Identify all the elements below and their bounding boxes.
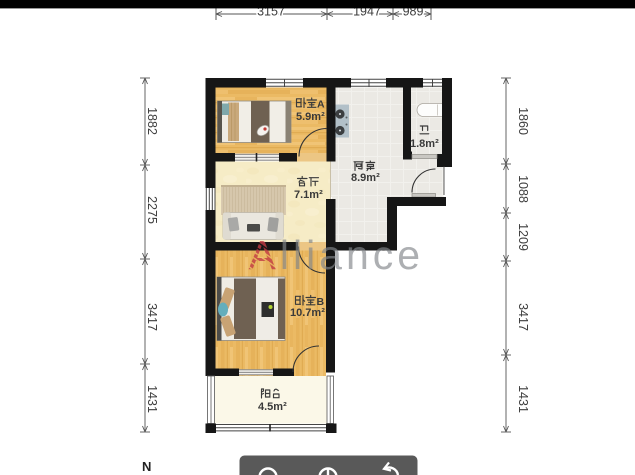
svg-text:A: A [317,99,325,111]
svg-text:1860: 1860 [516,107,530,135]
svg-text:1.8m²: 1.8m² [410,138,439,150]
svg-text:7.1m²: 7.1m² [294,189,323,201]
svg-text:4.5m²: 4.5m² [258,401,287,413]
svg-text:N: N [142,459,151,474]
svg-text:1088: 1088 [516,175,530,203]
svg-text:2275: 2275 [145,196,159,224]
svg-text:1431: 1431 [516,385,530,413]
svg-text:10.7m²: 10.7m² [290,307,325,319]
svg-text:5.9m²: 5.9m² [296,111,325,123]
svg-text:3417: 3417 [145,303,159,331]
svg-text:A: A [249,232,277,278]
svg-text:8.9m²: 8.9m² [351,172,380,184]
svg-text:1431: 1431 [145,385,159,413]
svg-text:3417: 3417 [516,303,530,331]
svg-text:1882: 1882 [145,107,159,135]
svg-text:1209: 1209 [516,223,530,251]
